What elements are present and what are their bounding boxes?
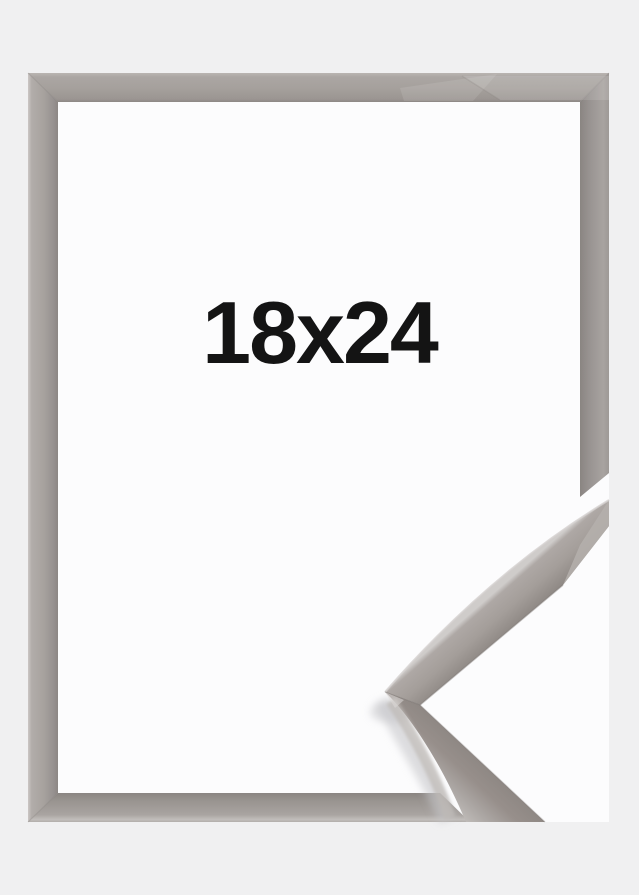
size-label: 18x24 — [0, 289, 639, 377]
frame-bottom-molding — [28, 793, 470, 822]
product-image: 18x24 — [0, 0, 639, 895]
frame-right-molding — [580, 73, 609, 497]
frame-left-molding — [28, 73, 58, 822]
frame-photo — [0, 0, 639, 895]
